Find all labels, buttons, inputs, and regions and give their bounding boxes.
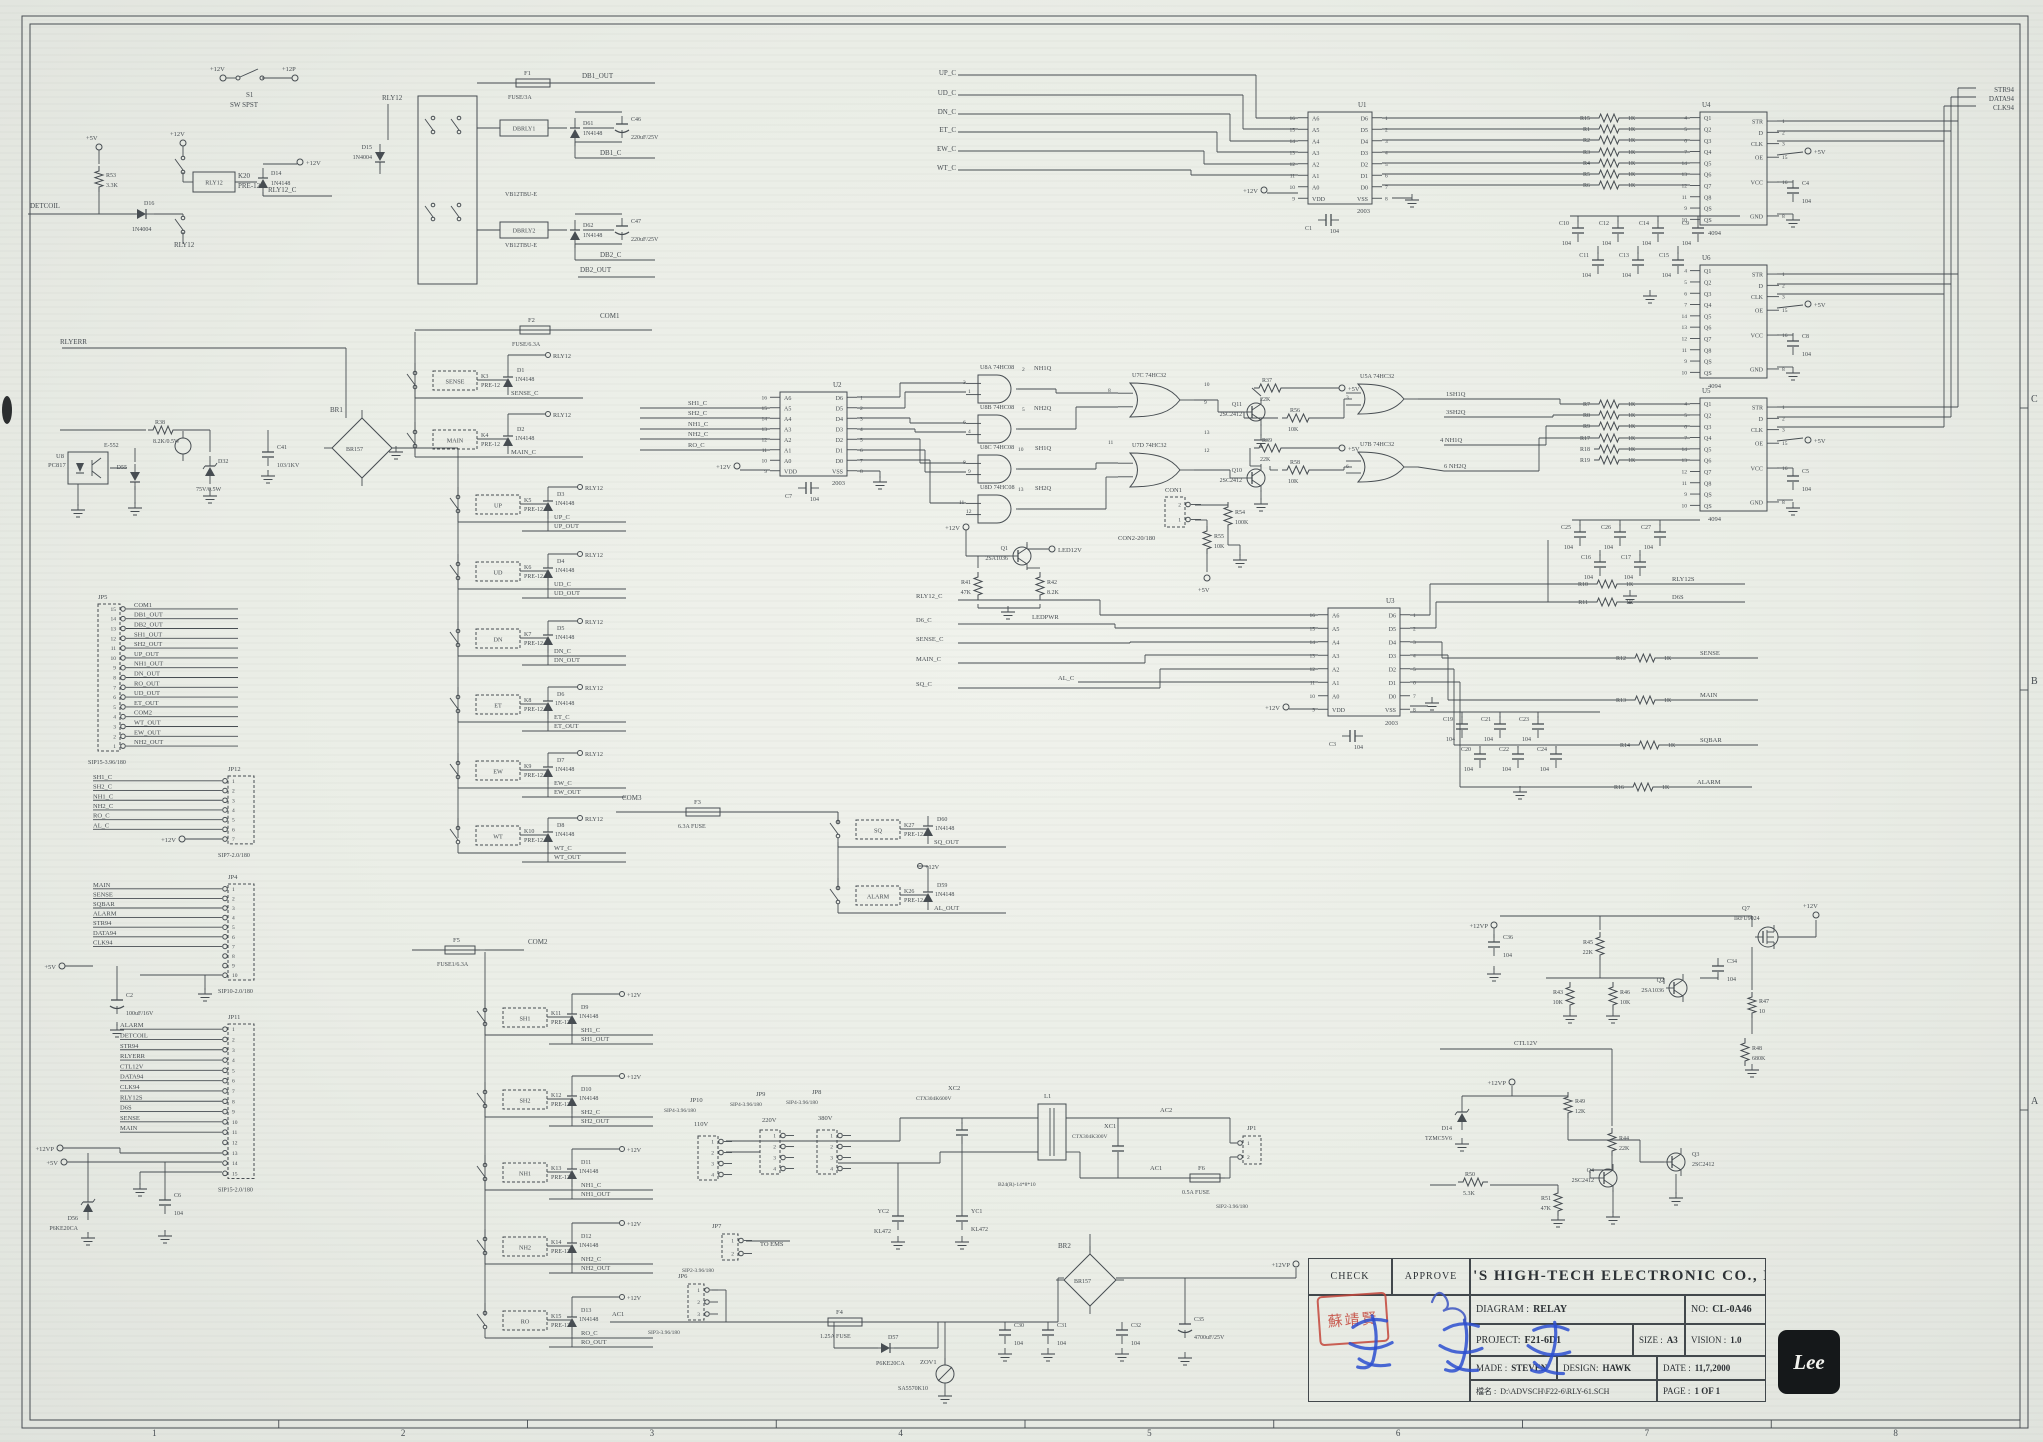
ground-symbol: [158, 1230, 172, 1243]
ground-symbol: [1405, 194, 1419, 207]
ground-symbol: [1563, 1010, 1577, 1023]
svg-text:+12V: +12V: [716, 464, 731, 471]
capacitor-C26: C26104: [1601, 524, 1626, 551]
svg-text:A0: A0: [1332, 694, 1339, 700]
svg-text:WT_C: WT_C: [937, 164, 956, 172]
svg-text:JP9: JP9: [756, 1091, 765, 1098]
svg-text:+5V: +5V: [1814, 438, 1826, 445]
svg-text:104: 104: [174, 1211, 183, 1217]
ground-symbol: [198, 988, 212, 1001]
svg-text:NH1_C: NH1_C: [688, 421, 708, 428]
svg-text:RLY12: RLY12: [553, 412, 571, 419]
svg-text:D: D: [1759, 131, 1764, 137]
svg-text:10K: 10K: [1214, 544, 1225, 550]
svg-text:10: 10: [1018, 447, 1024, 453]
svg-text:+12V: +12V: [627, 992, 642, 999]
svg-text:4 NH1Q: 4 NH1Q: [1440, 437, 1463, 444]
capacitor-C9: C9104: [1682, 220, 1704, 247]
svg-text:8: 8: [860, 469, 863, 475]
made-cell: MADE :STEVEN: [1470, 1356, 1557, 1380]
svg-text:K6: K6: [524, 565, 531, 571]
svg-text:RO_OUT: RO_OUT: [134, 680, 160, 687]
svg-text:A: A: [2031, 1096, 2039, 1107]
svg-text:D: D: [1759, 284, 1764, 290]
svg-text:104: 104: [1727, 977, 1736, 983]
ground-symbol: [1643, 290, 1657, 303]
svg-text:LED12V: LED12V: [1058, 547, 1082, 554]
svg-text:SIP2-3.96/180: SIP2-3.96/180: [1216, 1204, 1248, 1210]
resistor-R10: R101K: [1578, 580, 1634, 588]
svg-text:PRE-12: PRE-12: [524, 507, 543, 513]
svg-text:MAIN: MAIN: [93, 882, 111, 889]
resistor-R46: R4610K: [1609, 982, 1631, 1010]
svg-text:3: 3: [697, 1312, 700, 1318]
ground-symbol: [1254, 498, 1268, 511]
svg-text:YC2: YC2: [878, 1209, 889, 1215]
svg-text:F4: F4: [836, 1309, 844, 1316]
svg-text:F6: F6: [1198, 1165, 1206, 1172]
svg-text:D32: D32: [218, 459, 228, 465]
svg-text:1K: 1K: [1628, 413, 1636, 419]
svg-text:EW_C: EW_C: [554, 780, 572, 787]
svg-text:C47: C47: [631, 219, 641, 225]
svg-text:SQ_OUT: SQ_OUT: [934, 839, 959, 846]
svg-text:+12V: +12V: [170, 131, 185, 138]
svg-text:Q4: Q4: [1704, 150, 1711, 156]
svg-text:JP10: JP10: [690, 1097, 703, 1104]
svg-text:D61: D61: [583, 121, 593, 127]
svg-text:CLK: CLK: [1751, 428, 1764, 434]
svg-text:22K: 22K: [1260, 397, 1271, 403]
svg-text:8: 8: [1893, 1428, 1898, 1438]
power-node: +5V: [86, 135, 102, 150]
svg-text:U4: U4: [1702, 101, 1711, 109]
svg-text:R56: R56: [1290, 408, 1300, 414]
svg-text:PRE-12: PRE-12: [524, 574, 543, 580]
svg-text:7: 7: [1413, 694, 1416, 700]
svg-text:VSS: VSS: [1357, 197, 1368, 203]
svg-text:NH2_C: NH2_C: [581, 1256, 601, 1263]
svg-text:QS: QS: [1704, 218, 1712, 224]
svg-text:UP: UP: [494, 503, 502, 510]
svg-text:BR157: BR157: [346, 447, 363, 453]
svg-text:16: 16: [762, 395, 768, 401]
svg-text:GND: GND: [1750, 214, 1764, 220]
svg-text:15: 15: [1310, 626, 1316, 632]
capacitor-C17: C17104: [1621, 554, 1646, 581]
svg-text:KL472: KL472: [874, 1229, 891, 1235]
svg-text:U8D 74HC08: U8D 74HC08: [980, 484, 1015, 491]
svg-text:C9: C9: [1682, 221, 1689, 227]
svg-text:Q3: Q3: [1704, 292, 1711, 298]
svg-text:WT: WT: [493, 834, 503, 841]
svg-text:5: 5: [232, 1068, 235, 1074]
svg-text:4: 4: [711, 1173, 714, 1179]
resistor-R16: R161K: [1614, 783, 1670, 791]
svg-text:ALARM: ALARM: [867, 894, 890, 901]
svg-text:3: 3: [1782, 142, 1785, 148]
svg-text:R38: R38: [155, 420, 165, 426]
svg-text:UD_C: UD_C: [554, 581, 571, 588]
capacitor-c: [1112, 1138, 1124, 1160]
svg-text:14: 14: [1310, 640, 1316, 646]
svg-text:COM1: COM1: [134, 602, 152, 609]
resistor-R51: R5147K: [1541, 1188, 1562, 1216]
svg-text:JP6: JP6: [678, 1273, 688, 1280]
svg-text:A4: A4: [1332, 640, 1339, 646]
svg-text:15: 15: [1782, 441, 1788, 447]
svg-text:2: 2: [697, 1300, 700, 1306]
ground-symbol: [1425, 697, 1439, 710]
svg-text:DBRLY2: DBRLY2: [513, 229, 536, 235]
svg-text:Q3: Q3: [1704, 139, 1711, 145]
power-node: +12VP: [1272, 1261, 1299, 1269]
capacitor-C20: C20104: [1461, 746, 1486, 773]
svg-text:22K: 22K: [1619, 1146, 1630, 1152]
svg-text:3: 3: [1385, 139, 1388, 145]
svg-text:F2: F2: [528, 317, 535, 324]
capacitor-C5: C5104: [1787, 468, 1811, 493]
svg-text:SQBAR: SQBAR: [1700, 737, 1722, 744]
svg-text:5: 5: [1022, 407, 1025, 413]
svg-text:1N4004: 1N4004: [353, 155, 372, 161]
svg-text:U7C 74HC32: U7C 74HC32: [1132, 372, 1166, 379]
svg-text:RLY12: RLY12: [205, 181, 222, 187]
svg-text:QS: QS: [1704, 371, 1712, 377]
svg-text:DN_C: DN_C: [938, 108, 957, 116]
svg-text:12: 12: [762, 437, 768, 443]
no-cell: NO:CL-0A46: [1685, 1295, 1766, 1324]
svg-text:WT_OUT: WT_OUT: [554, 854, 581, 861]
svg-text:D1: D1: [1361, 174, 1368, 180]
svg-text:9: 9: [1312, 707, 1315, 713]
svg-text:R37: R37: [1262, 378, 1272, 384]
svg-text:D1: D1: [1389, 681, 1396, 687]
svg-text:3: 3: [830, 1156, 833, 1162]
svg-text:16: 16: [1290, 116, 1296, 122]
svg-text:8: 8: [232, 1099, 235, 1105]
svg-text:7: 7: [1684, 150, 1687, 156]
svg-text:STR94: STR94: [1994, 86, 2014, 94]
svg-text:STR: STR: [1752, 273, 1763, 279]
svg-text:SENSE: SENSE: [120, 1115, 140, 1122]
svg-text:D56: D56: [68, 1216, 78, 1222]
fuse-F4: F41.25A FUSE: [820, 1309, 867, 1340]
svg-text:1N4148: 1N4148: [579, 1014, 598, 1020]
svg-text:104: 104: [1562, 241, 1571, 247]
schematic-drawing: 12345678CBA16A615A514A413A312A211A110A09…: [0, 0, 2043, 1442]
svg-text:6: 6: [232, 935, 235, 941]
svg-text:D10: D10: [581, 1087, 591, 1093]
svg-text:1K: 1K: [1628, 116, 1636, 122]
svg-text:NH2_OUT: NH2_OUT: [581, 1265, 610, 1272]
svg-text:EW_OUT: EW_OUT: [554, 789, 581, 796]
svg-text:SIP10-2.0/180: SIP10-2.0/180: [218, 989, 253, 995]
svg-text:8: 8: [1108, 388, 1111, 394]
svg-text:D12: D12: [581, 1234, 591, 1240]
svg-text:+12V: +12V: [627, 1221, 642, 1228]
svg-text:3: 3: [232, 906, 235, 912]
diode-D16: D161N4004: [129, 201, 154, 233]
svg-text:2: 2: [1385, 127, 1388, 133]
svg-text:104: 104: [1503, 953, 1512, 959]
svg-text:1: 1: [731, 1239, 734, 1245]
svg-text:5: 5: [113, 705, 116, 711]
svg-text:14: 14: [1290, 139, 1296, 145]
svg-text:4700uF/25V: 4700uF/25V: [1194, 1335, 1225, 1341]
svg-text:R10: R10: [1578, 582, 1588, 588]
svg-text:NH1_OUT: NH1_OUT: [134, 661, 163, 668]
svg-text:+12V: +12V: [627, 1147, 642, 1154]
svg-text:14: 14: [111, 617, 117, 623]
capacitor-C16: C16104: [1581, 554, 1606, 581]
svg-text:16: 16: [1782, 180, 1788, 186]
relay-contact: [425, 203, 435, 221]
capacitor-C13: C13104: [1619, 252, 1644, 279]
svg-text:VDD: VDD: [1312, 197, 1326, 203]
svg-text:104: 104: [1802, 199, 1811, 205]
ic-U1: 16A615A514A413A312A211A110A09VDD1D62D53D…: [1290, 101, 1389, 215]
svg-text:DN: DN: [494, 637, 503, 644]
ground-symbol: [1606, 1211, 1620, 1224]
ground-symbol: [1233, 554, 1247, 567]
svg-text:4: 4: [898, 1428, 903, 1438]
resistor-R58: R5810K: [1282, 460, 1314, 485]
svg-text:4094: 4094: [1708, 516, 1722, 523]
ground-symbol: [1115, 1348, 1129, 1361]
svg-text:EW_C: EW_C: [937, 145, 956, 153]
svg-text:+12V: +12V: [1803, 903, 1818, 910]
svg-text:RLYERR: RLYERR: [60, 338, 87, 346]
svg-text:1K: 1K: [1628, 183, 1636, 189]
svg-text:+5V: +5V: [1348, 386, 1360, 393]
svg-text:DN_OUT: DN_OUT: [134, 671, 160, 678]
svg-text:380V: 380V: [818, 1115, 833, 1122]
sheet-frame: 12345678CBA: [22, 16, 2039, 1438]
resistor-R15: R151K: [1580, 114, 1636, 122]
svg-text:F3: F3: [694, 799, 701, 806]
svg-text:K20: K20: [238, 172, 251, 180]
block-DBRLY1: DBRLY1: [500, 120, 548, 136]
svg-text:C35: C35: [1194, 1317, 1204, 1323]
svg-text:D0: D0: [1389, 694, 1396, 700]
svg-text:A5: A5: [1312, 128, 1319, 134]
relay-K6: UDK6PRE-12D41N4148RLY12UD_CUD_OUT: [450, 552, 626, 599]
svg-text:1K: 1K: [1664, 698, 1672, 704]
svg-text:JP4: JP4: [228, 874, 238, 881]
svg-text:UD_C: UD_C: [938, 89, 957, 97]
svg-text:R50: R50: [1465, 1172, 1475, 1178]
resistor-R41: R4147K: [961, 572, 982, 600]
svg-text:4: 4: [830, 1167, 833, 1173]
svg-text:D60: D60: [937, 817, 947, 823]
resistor-R19: R191K: [1580, 456, 1636, 464]
svg-text:4: 4: [1413, 653, 1416, 659]
svg-text:104: 104: [1057, 1341, 1066, 1347]
svg-text:2: 2: [1178, 503, 1181, 509]
relay-K26: ALARMK26PRE-12D591N4148+12VAL_OUT: [830, 864, 1006, 914]
svg-text:SH1_C: SH1_C: [93, 774, 112, 781]
svg-text:RLY12S: RLY12S: [120, 1094, 143, 1101]
svg-text:NH2_C: NH2_C: [93, 803, 113, 810]
vision-cell: VISION :1.0: [1685, 1324, 1766, 1356]
svg-text:7: 7: [232, 1089, 235, 1095]
svg-text:Q8: Q8: [1704, 348, 1711, 354]
power-node: +12VP: [1470, 922, 1497, 930]
resistor-R43: R4310K: [1553, 982, 1574, 1010]
svg-text:1: 1: [968, 389, 971, 395]
approve-cell: APPROVE: [1392, 1258, 1470, 1295]
svg-text:C11: C11: [1579, 253, 1589, 259]
power-node: +12V: [297, 159, 321, 167]
power-node: +5V: [44, 963, 65, 971]
svg-text:1: 1: [830, 1134, 833, 1140]
svg-text:C16: C16: [1581, 555, 1591, 561]
svg-text:14: 14: [1682, 447, 1688, 453]
svg-text:SQBAR: SQBAR: [93, 901, 115, 908]
svg-text:9: 9: [764, 469, 767, 475]
svg-text:6 NH2Q: 6 NH2Q: [1444, 463, 1467, 470]
svg-text:AC1: AC1: [1150, 1165, 1162, 1172]
svg-text:R9: R9: [1583, 424, 1590, 430]
svg-text:AC1: AC1: [612, 1311, 624, 1318]
svg-text:6: 6: [860, 448, 863, 454]
resistor-R12: R121K: [1616, 654, 1672, 662]
svg-text:R8: R8: [1583, 413, 1590, 419]
svg-text:D6_C: D6_C: [916, 617, 932, 624]
svg-text:D55: D55: [117, 465, 127, 471]
svg-text:10: 10: [1682, 370, 1688, 376]
svg-text:R19: R19: [1580, 458, 1590, 464]
svg-text:D5: D5: [1389, 627, 1396, 633]
power-node: +12P: [282, 66, 298, 81]
svg-text:SIP4-3.96/180: SIP4-3.96/180: [786, 1100, 818, 1106]
relay-K4: MAINK4PRE-12D21N4148RLY12MAIN_C: [407, 412, 583, 458]
svg-text:RLY12: RLY12: [553, 353, 571, 360]
svg-text:1K: 1K: [1628, 458, 1636, 464]
svg-text:R54: R54: [1235, 510, 1245, 516]
svg-text:CTL12V: CTL12V: [120, 1063, 144, 1070]
diode-D15: D151N4004: [353, 144, 385, 170]
ground-symbol: [998, 1348, 1012, 1361]
svg-text:+5V: +5V: [86, 135, 98, 142]
svg-text:U3: U3: [1386, 597, 1395, 605]
relay-K12: SH2K12PRE-12D101N4148+12VSH2_CSH2_OUT: [477, 1074, 653, 1127]
svg-text:11: 11: [762, 448, 768, 454]
svg-text:DB1_OUT: DB1_OUT: [582, 72, 614, 80]
svg-text:PRE-12: PRE-12: [524, 641, 543, 647]
company-name: LEE'S HIGH-TECH ELECTRONIC CO., LTD: [1470, 1258, 1766, 1295]
power-node: +12V: [716, 463, 740, 471]
svg-text:2SA1036: 2SA1036: [1641, 988, 1664, 994]
svg-text:104: 104: [1604, 545, 1613, 551]
svg-text:3: 3: [963, 380, 966, 386]
svg-text:16: 16: [1782, 333, 1788, 339]
svg-text:VSS: VSS: [832, 469, 843, 475]
svg-text:1N4148: 1N4148: [515, 377, 534, 383]
svg-text:RLY12: RLY12: [585, 485, 603, 492]
svg-text:7: 7: [1385, 185, 1388, 191]
svg-text:5: 5: [1147, 1428, 1152, 1438]
svg-text:220uF/25V: 220uF/25V: [631, 135, 659, 141]
svg-text:1: 1: [773, 1134, 776, 1140]
svg-text:Q6: Q6: [1704, 173, 1711, 179]
svg-text:D15: D15: [362, 145, 372, 151]
svg-text:SIP15-2.0/180: SIP15-2.0/180: [218, 1188, 253, 1194]
svg-text:2SA1036: 2SA1036: [985, 556, 1008, 562]
svg-text:PRE-12: PRE-12: [481, 383, 500, 389]
svg-text:10K: 10K: [1288, 479, 1299, 485]
ground-symbol: [1745, 1064, 1759, 1077]
svg-text:C36: C36: [1503, 935, 1513, 941]
capacitor-C23: C23104: [1519, 716, 1544, 743]
transistor-Q3: Q32SC2412: [1664, 1148, 1714, 1176]
svg-text:104: 104: [1564, 545, 1573, 551]
svg-text:R43: R43: [1553, 990, 1563, 996]
svg-text:RLY12_C: RLY12_C: [916, 593, 942, 600]
svg-text:R45: R45: [1583, 940, 1593, 946]
svg-text:SA5570K10: SA5570K10: [898, 1386, 928, 1392]
svg-text:A4: A4: [1312, 139, 1319, 145]
svg-text:104: 104: [1131, 1341, 1140, 1347]
svg-text:C6: C6: [174, 1193, 181, 1199]
svg-text:1K: 1K: [1662, 785, 1670, 791]
svg-text:9: 9: [1684, 359, 1687, 365]
svg-text:15: 15: [111, 607, 117, 613]
svg-text:104: 104: [1540, 767, 1549, 773]
svg-text:+12V: +12V: [161, 837, 176, 844]
relay-contact: [425, 116, 435, 134]
svg-text:E-552: E-552: [104, 443, 119, 449]
svg-text:3: 3: [1346, 395, 1349, 401]
power-node: +12V: [161, 836, 185, 844]
diode-D57: D57P6KE20CA: [873, 1335, 905, 1367]
svg-text:SENSE: SENSE: [446, 379, 465, 386]
svg-text:PRE-12: PRE-12: [524, 707, 543, 713]
svg-text:14: 14: [232, 1161, 238, 1167]
capacitor-C46: C46220uF/25V: [615, 116, 659, 141]
svg-text:OE: OE: [1755, 309, 1763, 315]
svg-text:DETCOIL: DETCOIL: [30, 202, 60, 210]
svg-text:3: 3: [860, 416, 863, 422]
svg-text:Q3: Q3: [1692, 1152, 1699, 1158]
svg-text:R53: R53: [106, 173, 116, 179]
capacitor-C27: C27104: [1641, 524, 1666, 551]
svg-text:EW_OUT: EW_OUT: [134, 729, 161, 736]
svg-text:SH2_OUT: SH2_OUT: [134, 641, 162, 648]
svg-text:K8: K8: [524, 698, 531, 704]
svg-text:SH2: SH2: [519, 1098, 530, 1105]
svg-text:1K: 1K: [1628, 402, 1636, 408]
svg-text:1N4148: 1N4148: [555, 832, 574, 838]
file-cell: 檔名 :D:\ADVSCH\F22-6\RLY-61.SCH: [1470, 1380, 1657, 1402]
svg-text:2: 2: [1413, 626, 1416, 632]
connector-jp: 1234: [817, 1130, 851, 1174]
svg-text:1: 1: [152, 1428, 157, 1438]
svg-text:Q7: Q7: [1704, 337, 1711, 343]
resistor-R14: R141K: [1620, 741, 1676, 749]
svg-text:R7: R7: [1583, 402, 1590, 408]
svg-text:PRE-12: PRE-12: [551, 1249, 570, 1255]
power-node: +5V: [1805, 148, 1826, 156]
svg-text:10: 10: [232, 973, 238, 979]
ground-symbol: [1487, 968, 1501, 981]
svg-text:10: 10: [1204, 382, 1210, 388]
svg-text:C4: C4: [1802, 181, 1809, 187]
svg-text:PRE-12: PRE-12: [551, 1175, 570, 1181]
svg-text:11: 11: [1682, 348, 1688, 354]
svg-text:1N4148: 1N4148: [579, 1169, 598, 1175]
